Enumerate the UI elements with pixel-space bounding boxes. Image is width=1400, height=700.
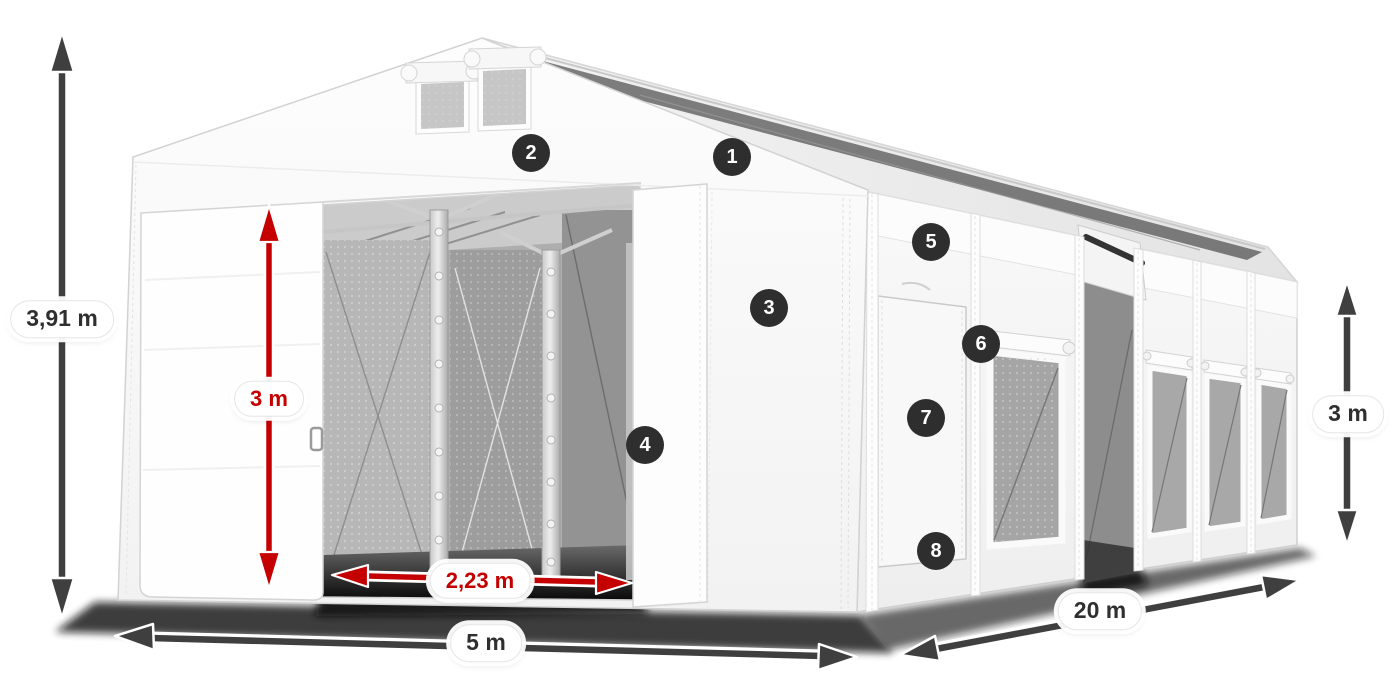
side-window-2 (1143, 350, 1195, 536)
dimension-label-side-height: 3 m (1312, 395, 1384, 433)
dimension-label-front-width: 5 m (450, 624, 522, 662)
tent-svg (0, 0, 1400, 700)
callout-7: 7 (907, 399, 945, 437)
callout-6: 6 (962, 325, 1000, 363)
dimension-label-gate-height: 3 m (234, 381, 304, 417)
dimension-label-total-height: 3,91 m (10, 300, 114, 338)
callout-2: 2 (512, 134, 550, 172)
side-window-1 (979, 330, 1075, 546)
side-window-3 (1201, 360, 1249, 529)
callout-4: 4 (626, 426, 664, 464)
front-opening-interior (322, 185, 640, 600)
callout-3: 3 (750, 289, 788, 327)
callout-5: 5 (912, 223, 950, 261)
right-gate-panel (633, 184, 707, 607)
side-window-4 (1253, 368, 1294, 522)
tent-dimension-diagram: 3,91 m 3 m 2,23 m 5 m 20 m 3 m 1 2 3 4 5… (0, 0, 1400, 700)
dimension-label-gate-width: 2,23 m (430, 563, 531, 599)
callout-1: 1 (713, 138, 751, 176)
dimension-label-side-length: 20 m (1058, 592, 1142, 630)
callout-8: 8 (917, 532, 955, 570)
